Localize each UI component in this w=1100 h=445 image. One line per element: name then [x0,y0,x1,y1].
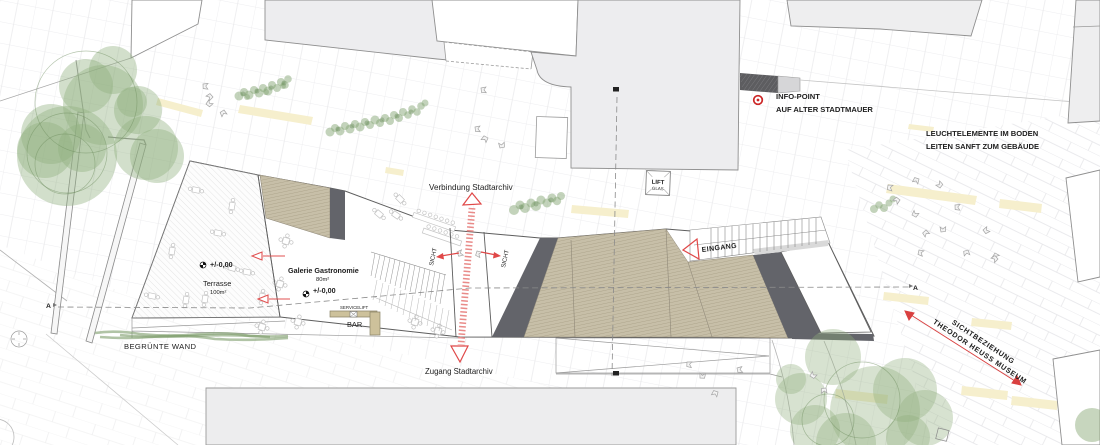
svg-text:A: A [913,285,918,292]
svg-text:BAR: BAR [347,320,362,329]
svg-text:LEUCHTELEMENTE IM BODEN: LEUCHTELEMENTE IM BODEN [926,129,1038,138]
svg-text:Zugang Stadtarchiv: Zugang Stadtarchiv [425,367,493,376]
svg-text:+/-0,00: +/-0,00 [210,260,233,269]
svg-text:80m²: 80m² [316,277,329,283]
svg-text:Terrasse: Terrasse [203,279,231,288]
svg-text:GLAS: GLAS [652,186,664,191]
svg-text:AUF ALTER STADTMAUER: AUF ALTER STADTMAUER [776,105,873,114]
svg-text:Galerie Gastronomie: Galerie Gastronomie [288,266,359,275]
svg-text:BEGRÜNTE WAND: BEGRÜNTE WAND [124,342,197,351]
svg-text:SERVICELIFT: SERVICELIFT [340,305,369,310]
svg-text:A: A [46,303,51,310]
svg-text:100m²: 100m² [210,290,227,296]
svg-text:INFO-POINT: INFO-POINT [776,92,820,101]
svg-text:+/-0,00: +/-0,00 [313,286,336,295]
svg-text:LEITEN SANFT ZUM GEBÄUDE: LEITEN SANFT ZUM GEBÄUDE [926,142,1039,151]
svg-text:Verbindung Stadtarchiv: Verbindung Stadtarchiv [429,183,514,192]
